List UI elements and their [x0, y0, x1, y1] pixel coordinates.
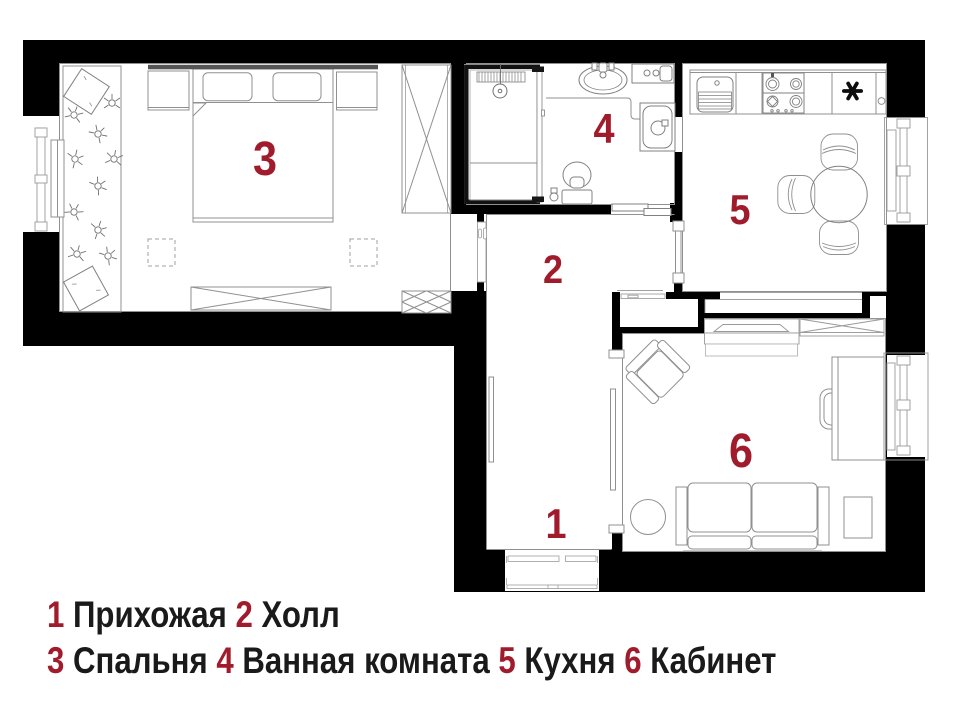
svg-text:3: 3 [253, 132, 277, 186]
svg-text:4: 4 [593, 106, 614, 152]
svg-text:2: 2 [543, 248, 563, 292]
svg-text:1: 1 [545, 501, 566, 547]
svg-text:1 Прихожая 2 Холл: 1 Прихожая 2 Холл [47, 595, 340, 636]
svg-text:6: 6 [729, 424, 753, 478]
svg-text:3 Спальня 4 Ванная комната 5 К: 3 Спальня 4 Ванная комната 5 Кухня 6 Каб… [47, 641, 776, 682]
svg-text:5: 5 [729, 187, 750, 233]
